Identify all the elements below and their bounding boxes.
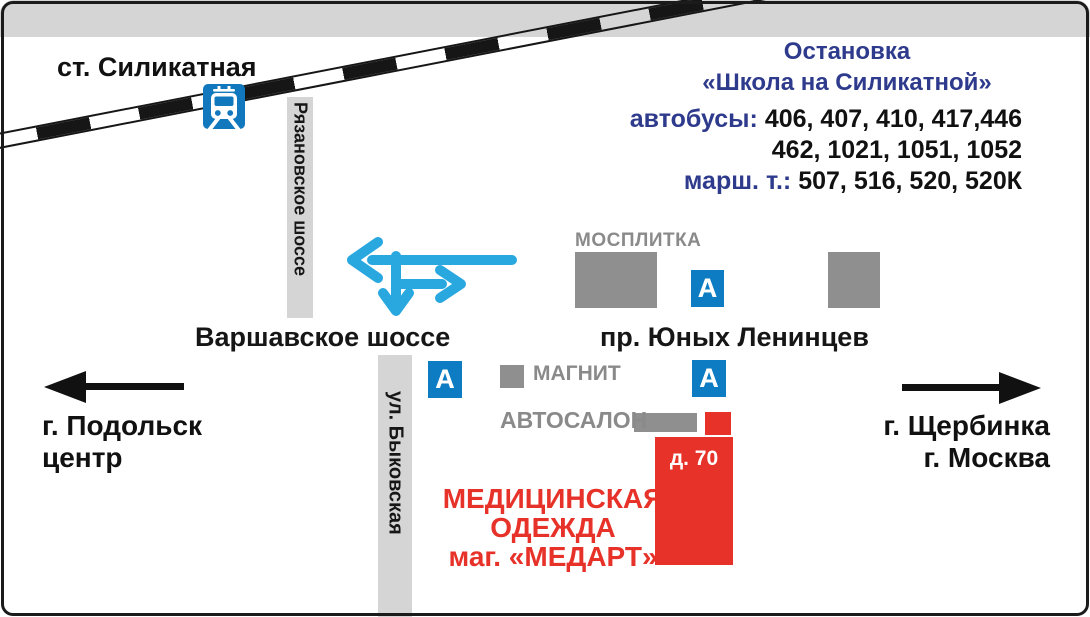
mosplitka-building [575, 252, 657, 308]
bus-stop-title-line1: Остановка [672, 36, 1022, 67]
east-direction-arrow-icon [902, 372, 1041, 404]
route-map: ст. Силикатная Рязановское шоссе ул. Бык… [0, 0, 1090, 617]
road-varshavskoe-label: Варшавское шоссе [195, 322, 450, 353]
buses-label: автобусы: [630, 105, 758, 133]
east-city-2: г. Москва [883, 442, 1050, 474]
bus-stop-sign-icon: А [691, 270, 724, 307]
buses-numbers: 406, 407, 410, 417,446 [765, 105, 1022, 133]
shop-label-line3: маг. «МЕДАРТ» [428, 542, 678, 571]
route-taxi-numbers: 507, 516, 520, 520К [798, 167, 1022, 195]
route-turn-arrows-icon [352, 242, 512, 311]
shop-label-line2: ОДЕЖДА [428, 513, 678, 542]
magnit-label: МАГНИТ [533, 362, 621, 386]
destination-annex-building [705, 412, 731, 435]
magnit-building [500, 365, 524, 388]
west-direction-label: г. Подольск центр [42, 410, 202, 474]
bus-stop-title: Остановка «Школа на Силикатной» [672, 36, 1022, 98]
road-ryazanovskoe-label: Рязановское шоссе [290, 102, 311, 318]
road-yunykh-lenintsev-label: пр. Юных Ленинцев [600, 322, 869, 353]
unnamed-building [828, 252, 880, 308]
west-city-2: центр [42, 442, 202, 474]
shop-label: МЕДИЦИНСКАЯ ОДЕЖДА маг. «МЕДАРТ» [428, 484, 678, 571]
avtosalon-label: АВТОСАЛОН [500, 407, 647, 434]
road-bykovskaya: ул. Быковская [378, 355, 412, 617]
road-bykovskaya-label: ул. Быковская [384, 391, 407, 617]
route-taxi-line: марш. т.: 507, 516, 520, 520К [612, 166, 1022, 197]
shop-label-line1: МЕДИЦИНСКАЯ [428, 484, 678, 513]
bus-stop-sign-icon: А [428, 361, 462, 398]
building-number: д. 70 [655, 447, 733, 471]
east-direction-label: г. Щербинка г. Москва [883, 410, 1050, 474]
bus-stop-title-line2: «Школа на Силикатной» [672, 67, 1022, 98]
station-label: ст. Силикатная [57, 52, 257, 83]
west-direction-arrow-icon [44, 371, 184, 403]
bus-numbers-line1: автобусы: 406, 407, 410, 417,446 [612, 104, 1022, 135]
train-icon [203, 84, 245, 129]
east-city: г. Щербинка [883, 410, 1050, 442]
bus-stop-info: Остановка «Школа на Силикатной» автобусы… [612, 36, 1022, 197]
mosplitka-label: МОСПЛИТКА [575, 230, 701, 252]
road-ryazanovskoe: Рязановское шоссе [287, 97, 313, 318]
route-taxi-label: марш. т.: [684, 167, 791, 195]
bus-stop-sign-icon: А [692, 360, 726, 397]
west-city: г. Подольск [42, 410, 202, 442]
bus-numbers-line2: 462, 1021, 1051, 1052 [612, 135, 1022, 166]
train-station-icon [203, 84, 245, 129]
